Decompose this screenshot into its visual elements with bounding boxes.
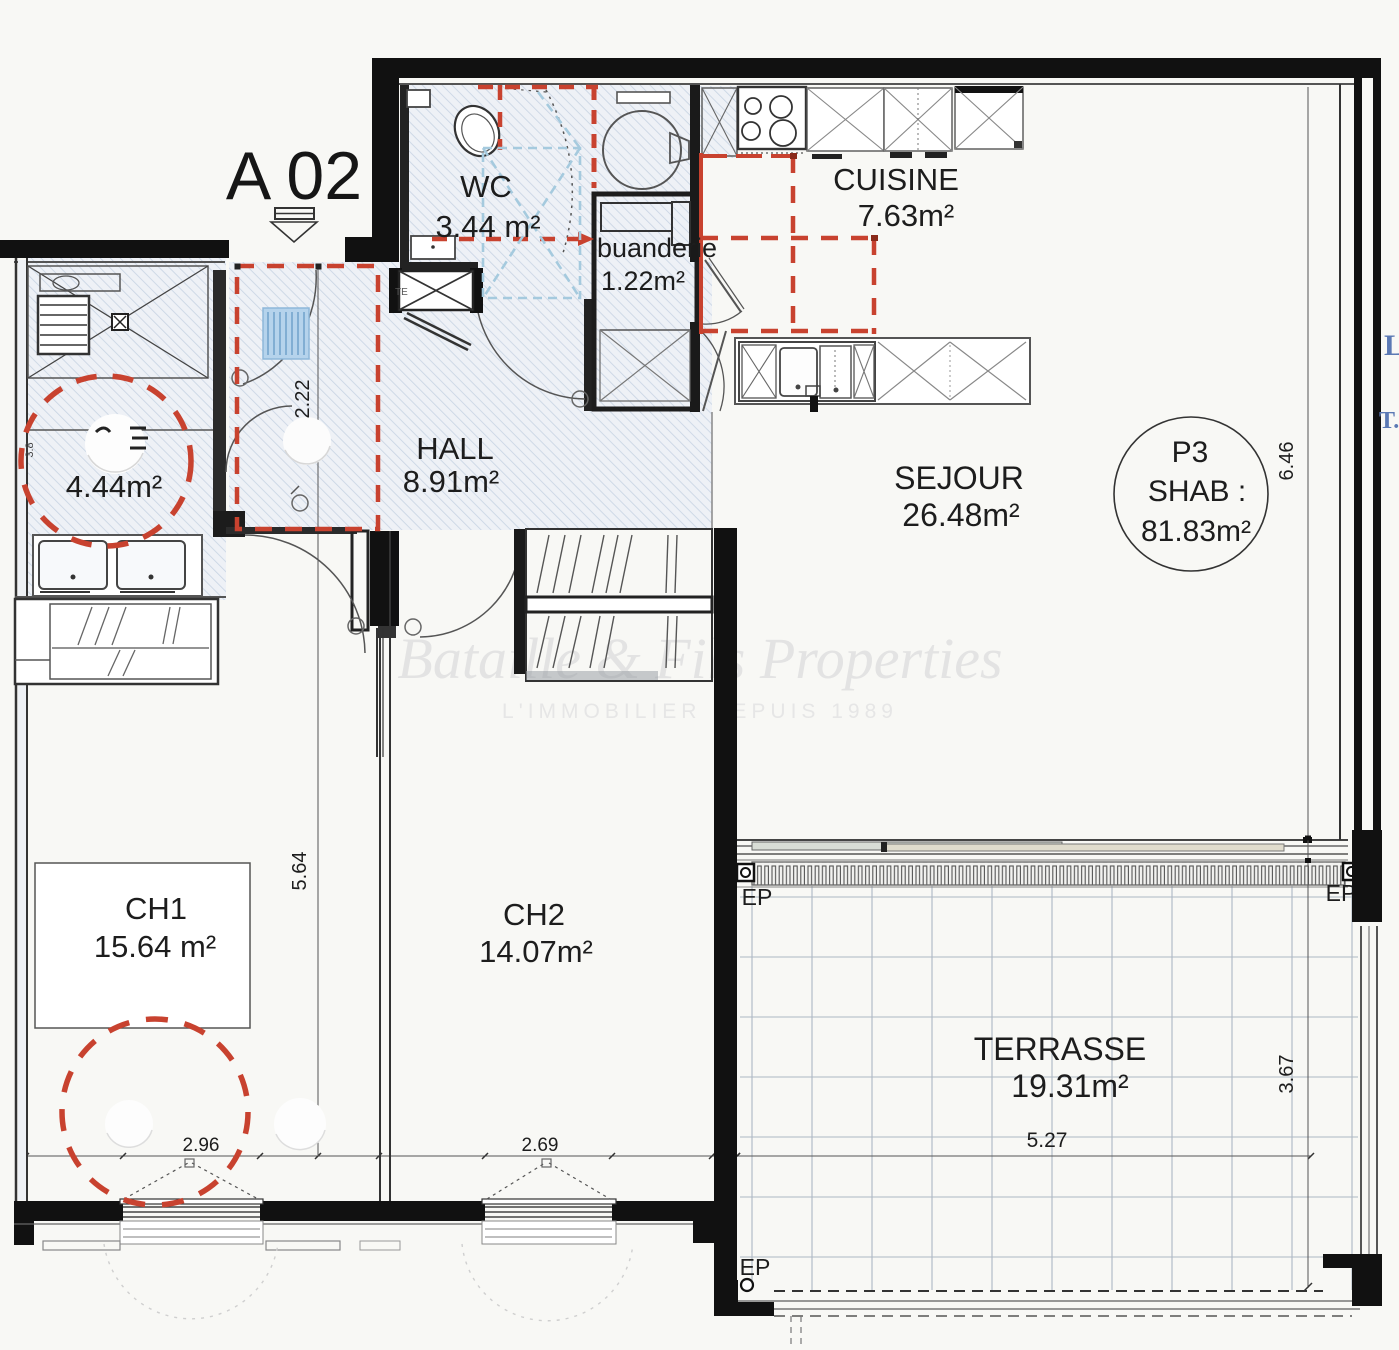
svg-text:8.91m²: 8.91m² <box>403 464 499 499</box>
svg-text:WC: WC <box>460 169 512 204</box>
svg-text:P3: P3 <box>1172 436 1209 469</box>
svg-text:6.46: 6.46 <box>1276 442 1298 481</box>
svg-text:19.31m²: 19.31m² <box>1011 1068 1129 1104</box>
svg-text:TERRASSE: TERRASSE <box>974 1031 1146 1067</box>
svg-text:buanderie: buanderie <box>597 233 717 263</box>
svg-text:26.48m²: 26.48m² <box>902 497 1020 533</box>
svg-text:5.27: 5.27 <box>1027 1129 1068 1152</box>
svg-text:SEJOUR: SEJOUR <box>894 460 1024 496</box>
svg-text:5.64: 5.64 <box>289 852 311 891</box>
svg-text:2.22: 2.22 <box>292 380 314 419</box>
svg-text:HALL: HALL <box>416 431 494 466</box>
svg-text:EP: EP <box>742 884 773 910</box>
svg-text:1.22m²: 1.22m² <box>601 266 685 296</box>
svg-text:14.07m²: 14.07m² <box>479 934 593 969</box>
svg-text:3.44 m²: 3.44 m² <box>435 209 540 244</box>
svg-text:T.: T. <box>1379 408 1399 434</box>
svg-text:L: L <box>1384 329 1399 362</box>
svg-text:EP: EP <box>740 1254 771 1280</box>
svg-text:81.83m²: 81.83m² <box>1141 515 1251 548</box>
svg-text:7.63m²: 7.63m² <box>858 198 954 233</box>
svg-text:3.67: 3.67 <box>1276 1055 1298 1094</box>
svg-text:4.44m²: 4.44m² <box>66 469 162 504</box>
svg-text:2.69: 2.69 <box>522 1135 559 1156</box>
svg-text:TE: TE <box>395 287 408 298</box>
svg-text:SHAB :: SHAB : <box>1148 475 1246 508</box>
svg-text:EP: EP <box>1326 880 1357 906</box>
svg-text:L'IMMOBILIER DEPUIS 1989: L'IMMOBILIER DEPUIS 1989 <box>502 700 898 723</box>
svg-text:A 02: A 02 <box>226 138 362 214</box>
svg-text:CH1: CH1 <box>125 891 187 926</box>
svg-text:CH2: CH2 <box>503 897 565 932</box>
svg-text:2.96: 2.96 <box>183 1135 220 1156</box>
svg-text:3.8: 3.8 <box>24 442 36 457</box>
svg-text:15.64 m²: 15.64 m² <box>94 929 216 964</box>
svg-text:CUISINE: CUISINE <box>833 162 959 197</box>
